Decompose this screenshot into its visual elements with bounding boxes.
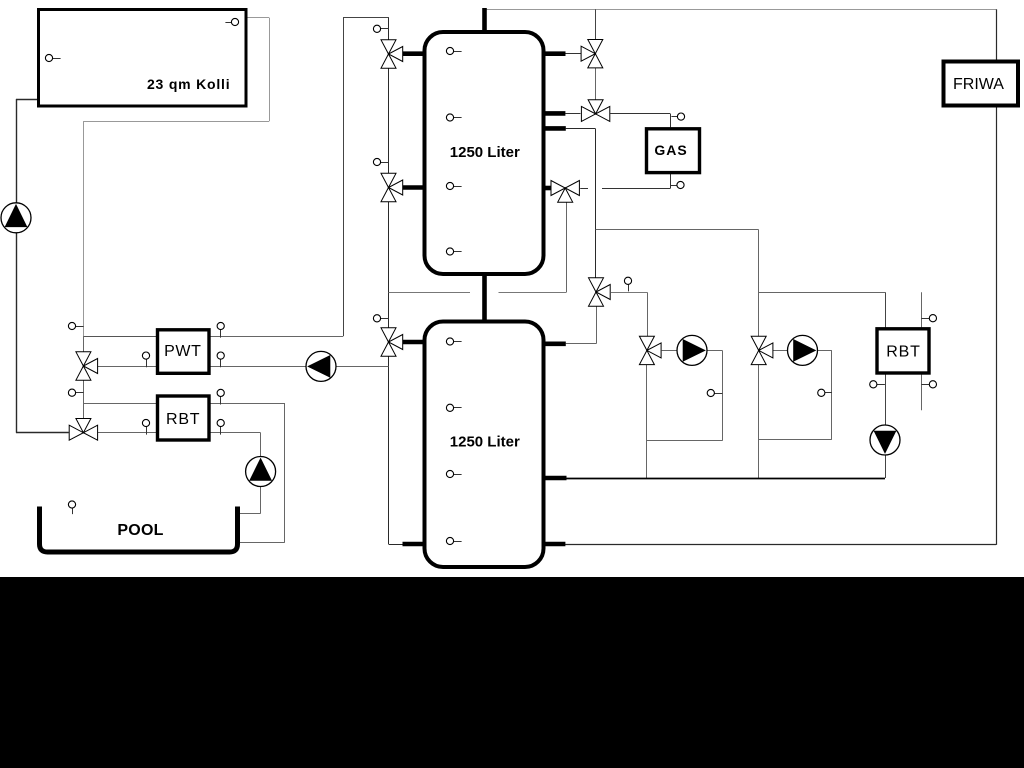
svg-text:RBT: RBT [166,411,200,428]
svg-text:23 qm Kolli: 23 qm Kolli [147,76,230,92]
svg-text:POOL: POOL [117,522,163,539]
svg-text:RBT: RBT [886,344,920,361]
svg-text:1250 Liter: 1250 Liter [450,144,520,161]
svg-text:PWT: PWT [164,343,201,360]
svg-text:1250 Liter: 1250 Liter [450,434,520,451]
svg-text:FRIWA: FRIWA [953,76,1004,93]
svg-text:GAS: GAS [654,142,687,158]
